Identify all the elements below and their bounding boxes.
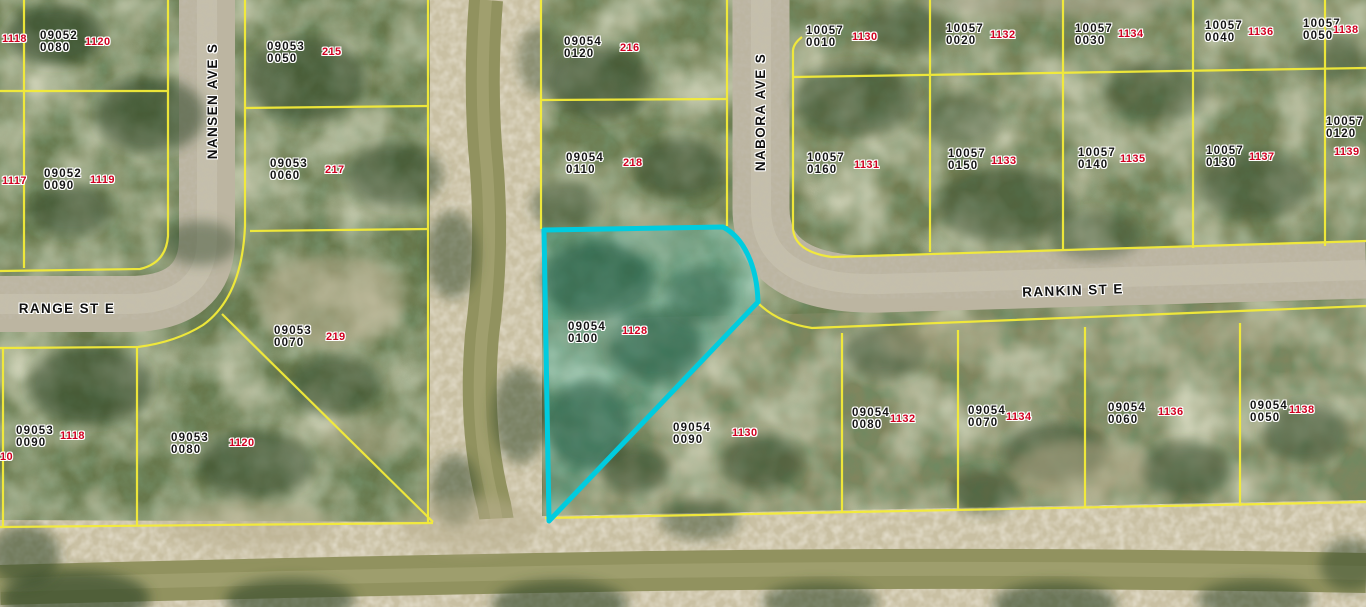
map-root[interactable]: NANSEN AVE SNABORA AVE SRANGE ST ERANKIN… bbox=[0, 0, 1366, 607]
aerial-basemap bbox=[0, 0, 1366, 607]
